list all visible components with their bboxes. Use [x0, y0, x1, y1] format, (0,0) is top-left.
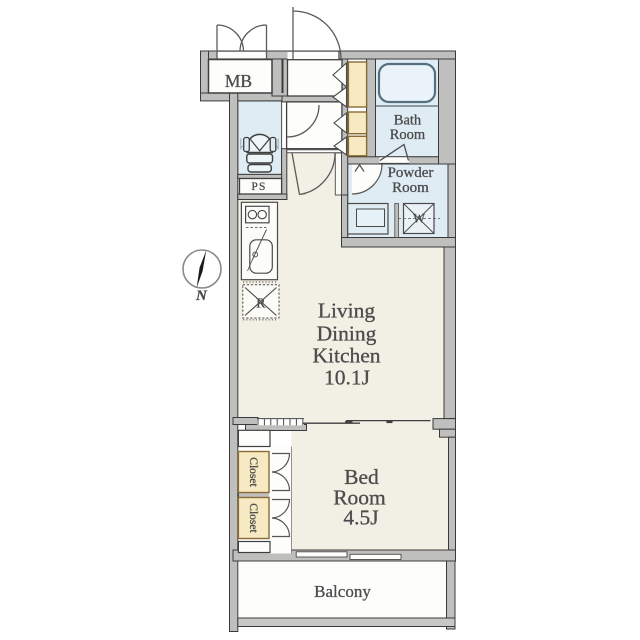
svg-text:4.5J: 4.5J: [343, 506, 378, 530]
svg-text:Powder: Powder: [388, 165, 434, 181]
svg-text:Closet: Closet: [247, 457, 259, 487]
svg-text:Dining: Dining: [317, 322, 377, 346]
svg-text:Room: Room: [392, 180, 429, 196]
svg-text:N: N: [195, 288, 208, 304]
svg-text:PS: PS: [251, 181, 266, 193]
svg-text:Living: Living: [318, 299, 376, 323]
svg-text:Kitchen: Kitchen: [312, 344, 380, 368]
svg-text:10.1J: 10.1J: [324, 366, 370, 390]
svg-text:Balcony: Balcony: [314, 582, 371, 601]
svg-text:R: R: [256, 297, 266, 312]
svg-text:W: W: [413, 212, 425, 226]
svg-text:Room: Room: [390, 127, 426, 143]
svg-text:MB: MB: [225, 71, 252, 91]
svg-text:Closet: Closet: [247, 503, 259, 533]
